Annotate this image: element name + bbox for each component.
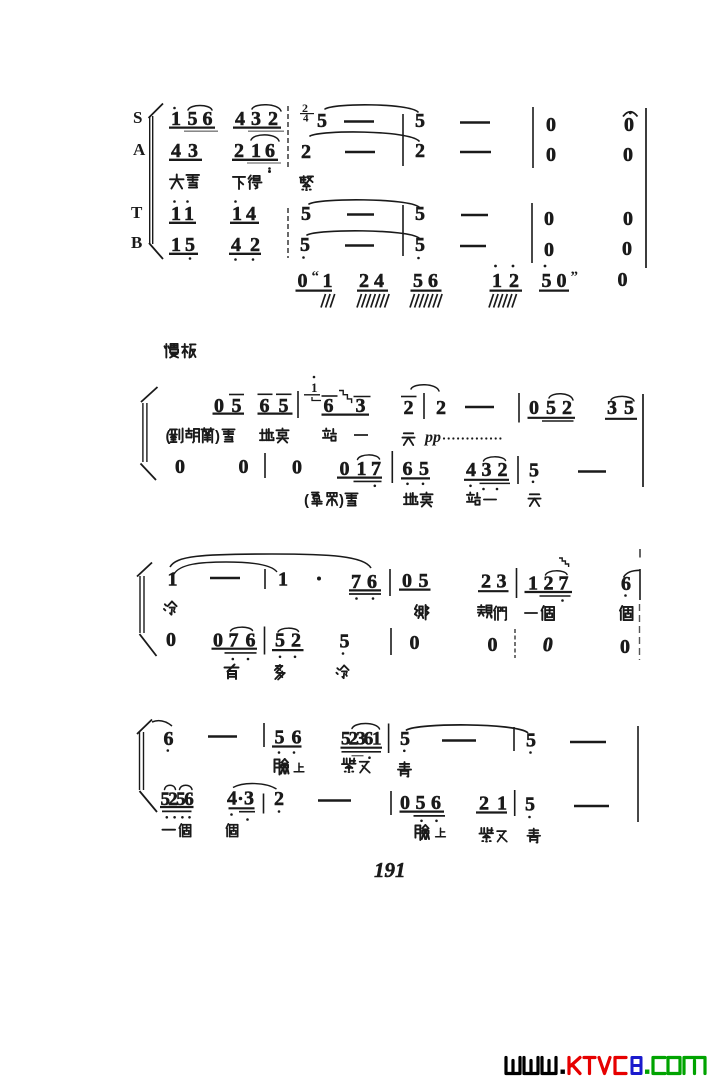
svg-text:6: 6: [164, 728, 174, 750]
svg-text:0: 0: [529, 397, 539, 419]
svg-text:2: 2: [479, 793, 489, 815]
svg-text:1: 1: [492, 270, 502, 292]
svg-text:2: 2: [415, 140, 425, 162]
svg-text:5: 5: [525, 794, 535, 816]
svg-text:): ): [215, 428, 220, 445]
svg-text:0: 0: [175, 456, 185, 478]
svg-text:pp: pp: [423, 429, 441, 446]
svg-text:1: 1: [372, 729, 382, 750]
svg-text:A: A: [133, 140, 146, 159]
svg-text:5: 5: [415, 203, 425, 225]
svg-text:0: 0: [488, 634, 498, 656]
svg-text:2: 2: [404, 397, 414, 419]
svg-text:4: 4: [303, 113, 309, 125]
svg-text:0: 0: [546, 144, 556, 166]
svg-text:2: 2: [301, 141, 311, 163]
svg-text:5: 5: [317, 110, 327, 132]
svg-text:5: 5: [300, 234, 310, 256]
svg-text:2: 2: [481, 571, 491, 593]
svg-text:2: 2: [274, 788, 284, 810]
svg-text:1: 1: [311, 380, 318, 395]
svg-text:2: 2: [562, 397, 572, 419]
svg-text:T: T: [131, 203, 143, 222]
svg-text:4: 4: [466, 459, 476, 481]
svg-text:5: 5: [546, 397, 556, 419]
svg-text:0: 0: [624, 114, 634, 136]
svg-text:0: 0: [620, 636, 630, 658]
svg-text:0: 0: [623, 208, 633, 230]
svg-text:0: 0: [544, 208, 554, 230]
svg-text:S: S: [133, 108, 142, 127]
svg-text:0: 0: [166, 629, 176, 651]
svg-text:0: 0: [557, 270, 567, 292]
svg-text:2: 2: [436, 397, 446, 419]
svg-text:0: 0: [544, 239, 554, 261]
svg-text:0: 0: [622, 238, 632, 260]
svg-text:6: 6: [428, 270, 438, 292]
svg-text:5: 5: [526, 730, 536, 752]
svg-text:4: 4: [227, 788, 237, 810]
svg-text:5: 5: [340, 631, 350, 653]
svg-text:0: 0: [239, 456, 249, 478]
svg-text:3: 3: [482, 459, 492, 481]
svg-text:5: 5: [415, 110, 425, 132]
svg-text:B: B: [131, 233, 142, 252]
svg-text:5: 5: [542, 270, 552, 292]
svg-text:191: 191: [374, 858, 406, 882]
svg-text:1: 1: [323, 270, 333, 292]
svg-text:0: 0: [623, 144, 633, 166]
svg-text:0: 0: [410, 632, 420, 654]
svg-text:0: 0: [292, 457, 302, 479]
svg-text:5: 5: [419, 458, 429, 480]
svg-text:0: 0: [546, 114, 556, 136]
svg-text:5: 5: [301, 203, 311, 225]
svg-text:4: 4: [374, 270, 384, 292]
svg-text:5: 5: [400, 728, 410, 750]
svg-text:5: 5: [275, 630, 285, 652]
svg-text:5: 5: [275, 727, 285, 749]
svg-text:1: 1: [497, 793, 507, 815]
svg-text:5: 5: [624, 397, 634, 419]
svg-text:0: 0: [298, 270, 308, 292]
svg-text:5: 5: [529, 460, 539, 482]
svg-text:“: “: [312, 269, 320, 285]
svg-text:3: 3: [607, 397, 617, 419]
svg-text:3: 3: [497, 571, 507, 593]
svg-text:6: 6: [292, 727, 302, 749]
svg-text:): ): [339, 492, 344, 509]
svg-text:1: 1: [168, 569, 178, 591]
svg-text:6: 6: [403, 458, 413, 480]
svg-text:6: 6: [621, 573, 631, 595]
svg-text:”: ”: [571, 269, 579, 285]
svg-text:1: 1: [278, 569, 288, 591]
svg-text:2: 2: [291, 630, 301, 652]
svg-text:0: 0: [618, 269, 628, 291]
svg-text:3: 3: [244, 788, 254, 810]
svg-text:2: 2: [359, 270, 369, 292]
svg-text:5: 5: [415, 234, 425, 256]
svg-text:2: 2: [498, 459, 508, 481]
svg-text:2: 2: [509, 270, 519, 292]
svg-text:(: (: [304, 492, 309, 509]
svg-text:5: 5: [413, 270, 423, 292]
